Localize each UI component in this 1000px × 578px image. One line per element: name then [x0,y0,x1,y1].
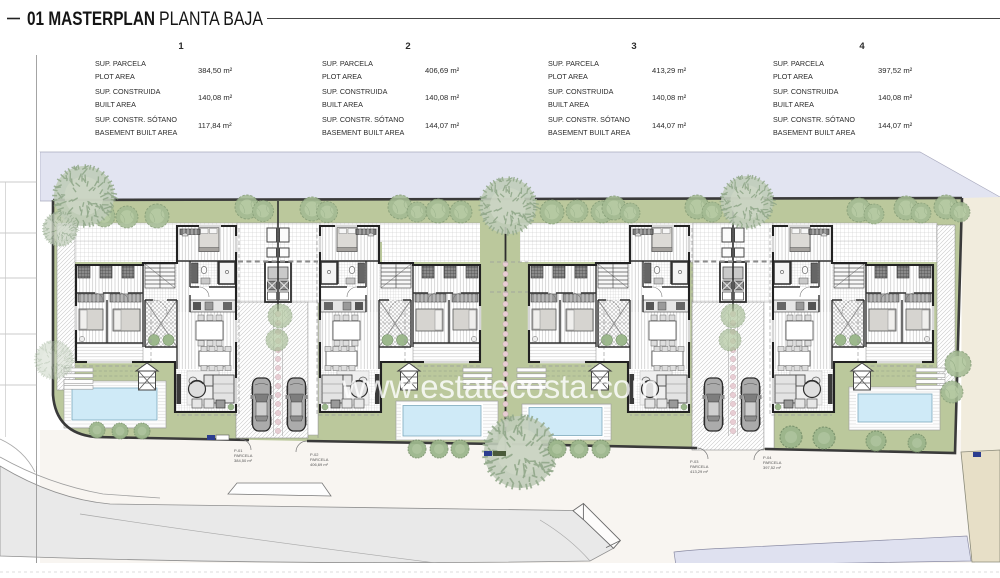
svg-text:BUILT AREA: BUILT AREA [95,100,136,109]
svg-text:144,07 m²: 144,07 m² [425,121,460,130]
svg-text:140,08 m²: 140,08 m² [652,93,687,102]
svg-text:SUP. PARCELA: SUP. PARCELA [95,59,146,68]
svg-text:BUILT AREA: BUILT AREA [548,100,589,109]
svg-text:BUILT AREA: BUILT AREA [773,100,814,109]
svg-text:SUP. PARCELA: SUP. PARCELA [773,59,824,68]
svg-text:PLOT AREA: PLOT AREA [95,72,135,81]
svg-text:2: 2 [405,41,410,52]
svg-text:406,69 m²: 406,69 m² [425,66,460,75]
svg-text:BASEMENT BUILT AREA: BASEMENT BUILT AREA [95,128,177,137]
svg-text:SUP. CONSTR. SÓTANO: SUP. CONSTR. SÓTANO [773,115,855,124]
svg-text:397,52 m²: 397,52 m² [878,66,913,75]
svg-text:140,08 m²: 140,08 m² [878,93,913,102]
svg-text:144,07 m²: 144,07 m² [652,121,687,130]
svg-text:140,08 m²: 140,08 m² [198,93,233,102]
svg-text:BASEMENT BUILT AREA: BASEMENT BUILT AREA [773,128,855,137]
svg-text:PLOT AREA: PLOT AREA [322,72,362,81]
svg-text:SUP. CONSTR. SÓTANO: SUP. CONSTR. SÓTANO [322,115,404,124]
svg-text:SUP. CONSTR. SÓTANO: SUP. CONSTR. SÓTANO [95,115,177,124]
svg-text:144,07 m²: 144,07 m² [878,121,913,130]
svg-text:117,84 m²: 117,84 m² [198,121,232,130]
svg-text:BASEMENT BUILT AREA: BASEMENT BUILT AREA [548,128,630,137]
svg-text:397,52 m²: 397,52 m² [763,465,782,470]
svg-text:SUP. PARCELA: SUP. PARCELA [322,59,373,68]
svg-text:384,50 m²: 384,50 m² [198,66,233,75]
svg-text:413,29 m²: 413,29 m² [652,66,687,75]
svg-text:1: 1 [178,41,184,52]
svg-text:SUP. CONSTR. SÓTANO: SUP. CONSTR. SÓTANO [548,115,630,124]
svg-text:3: 3 [631,41,636,52]
svg-text:01 MASTERPLANPLANTA BAJA: 01 MASTERPLANPLANTA BAJA [27,9,263,30]
svg-text:140,08 m²: 140,08 m² [425,93,460,102]
svg-text:384,50 m²: 384,50 m² [234,458,253,463]
svg-text:PLOT AREA: PLOT AREA [548,72,588,81]
svg-text:SUP. PARCELA: SUP. PARCELA [548,59,599,68]
svg-text:SUP. CONSTRUIDA: SUP. CONSTRUIDA [95,87,161,96]
svg-text:PLOT AREA: PLOT AREA [773,72,813,81]
svg-text:SUP. CONSTRUIDA: SUP. CONSTRUIDA [322,87,388,96]
svg-text:406,69 m²: 406,69 m² [310,462,329,467]
svg-text:413,29 m²: 413,29 m² [690,469,709,474]
svg-text:BUILT AREA: BUILT AREA [322,100,363,109]
svg-text:4: 4 [859,41,865,52]
svg-text:SUP. CONSTRUIDA: SUP. CONSTRUIDA [773,87,839,96]
svg-text:www.estatecosta.com: www.estatecosta.com [341,368,658,405]
svg-text:SUP. CONSTRUIDA: SUP. CONSTRUIDA [548,87,614,96]
svg-text:BASEMENT BUILT AREA: BASEMENT BUILT AREA [322,128,404,137]
